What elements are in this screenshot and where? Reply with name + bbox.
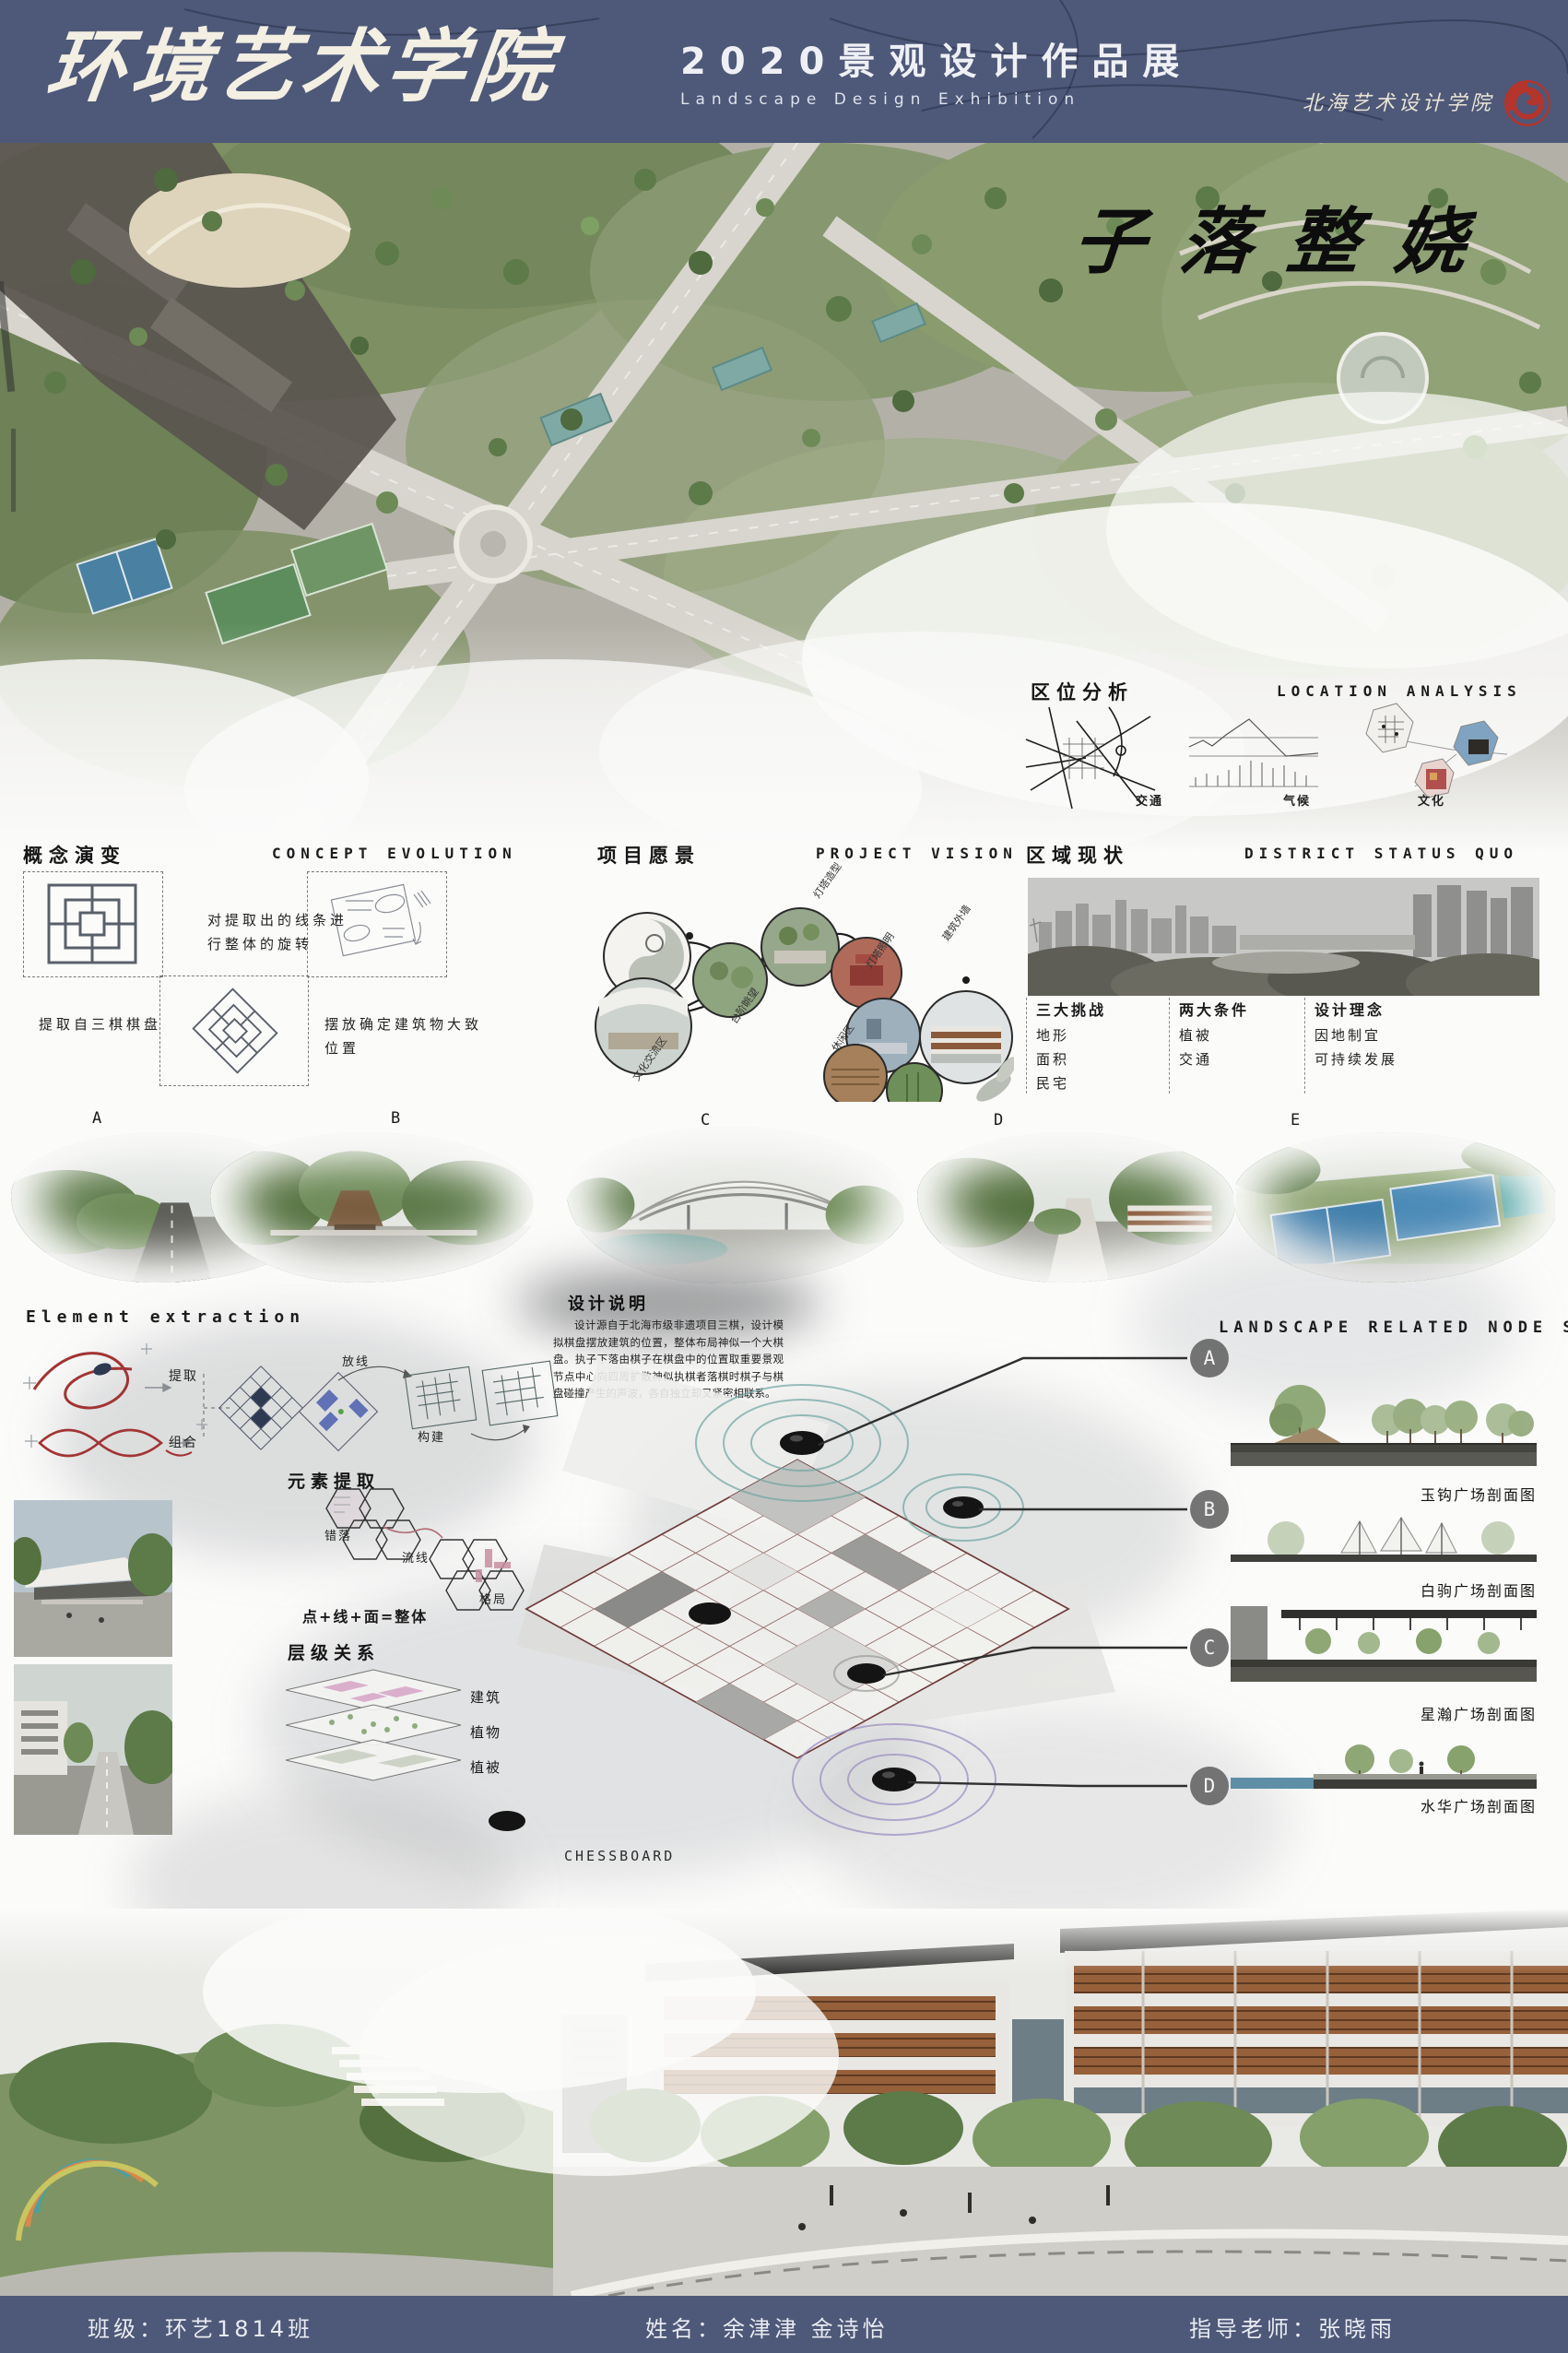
- institute-name: 北海艺术设计学院: [1303, 87, 1494, 116]
- section-marker-d: D: [1190, 1767, 1229, 1805]
- status-title-en: DISTRICT STATUS QUO: [1244, 845, 1518, 862]
- section-drawing-yugou: [1231, 1372, 1537, 1477]
- perspective-label-d: D: [994, 1111, 1003, 1129]
- section-marker-b: B: [1190, 1490, 1229, 1529]
- element-extract-label: 提取: [169, 1369, 198, 1384]
- location-analysis-title-zh: 区位分析: [1031, 678, 1134, 705]
- status-item: 面积: [1036, 1047, 1165, 1071]
- status-column-title: 设计理念: [1315, 998, 1499, 1020]
- chessboard-axon-plan: [433, 1305, 1244, 1904]
- campus-perspective-render: [0, 1909, 1568, 2296]
- perspective-label-b: B: [391, 1109, 400, 1128]
- render-photo-plaza: [14, 1500, 172, 1657]
- section-label-yugou: 玉钩广场剖面图: [1231, 1483, 1537, 1505]
- climate-chart-diagram: [1185, 715, 1323, 793]
- artwork-title: 子落整娆: [1069, 184, 1558, 288]
- section-drawing-shuihua: [1231, 1739, 1537, 1792]
- section-drawing-baiju: [1231, 1512, 1537, 1573]
- exhibition-subtitle: Landscape Design Exhibition: [680, 90, 1193, 109]
- status-column-conditions: 两大条件 植被 交通: [1169, 998, 1299, 1094]
- concept-title-zh: 概念演变: [23, 841, 126, 869]
- concept-caption-place: 摆放确定建筑物大致位置: [324, 1012, 486, 1060]
- status-item: 可持续发展: [1315, 1047, 1499, 1071]
- vision-journey-diagram: 灯塔造型 灯塔照明 建筑外墙 台阶眺望 休闲区 文化交流区: [590, 862, 1014, 1102]
- school-title: 环境艺术学院: [41, 2, 563, 117]
- section-label-shuihua: 水华广场剖面图: [1231, 1794, 1537, 1816]
- rotated-board-diagram: [180, 979, 290, 1082]
- concept-caption-source: 提取自三棋棋盘: [39, 1012, 161, 1036]
- section-drawing-xinghan: [1231, 1606, 1537, 1695]
- node-section-title: LANDSCAPE RELATED NODE SECTION: [1219, 1318, 1568, 1337]
- hierarchy-title: 层级关系: [288, 1639, 380, 1664]
- footer-banner: 班级：环艺1814班 姓名：余津津 金诗怡 指导老师：张晓雨: [0, 2296, 1568, 2353]
- element-formula: 点+线+面=整体: [302, 1604, 428, 1626]
- section-label-xinghan: 星瀚广场剖面图: [1231, 1702, 1537, 1724]
- location-item-traffic: 交通: [1136, 791, 1163, 809]
- status-column-challenges: 三大挑战 地形 面积 民宅: [1026, 998, 1165, 1094]
- exhibition-title-block: 2020景观设计作品展 Landscape Design Exhibition: [680, 31, 1193, 109]
- element-setout-label: 放线: [342, 1355, 370, 1369]
- concept-caption-rotate: 对提取出的线条进行整体的旋转: [207, 908, 355, 956]
- perspective-render-c: [567, 1127, 908, 1283]
- perspective-label-a: A: [92, 1109, 101, 1128]
- status-column-title: 三大挑战: [1036, 998, 1165, 1020]
- location-item-climate: 气候: [1283, 791, 1311, 809]
- poster-root: 子落整娆 环境艺术学院 2020景观设计作品展 Landscape Design…: [0, 0, 1568, 2353]
- status-item: 交通: [1179, 1047, 1299, 1071]
- vision-title-en: PROJECT VISION: [816, 845, 1018, 862]
- hex-label-liuxian: 流线: [402, 1552, 430, 1566]
- section-marker-c: C: [1190, 1628, 1229, 1667]
- perspective-render-b: [210, 1132, 537, 1283]
- status-item: 因地制宜: [1315, 1023, 1499, 1047]
- status-item: 民宅: [1036, 1071, 1165, 1095]
- footer-advisor: 指导老师：张晓雨: [1189, 2311, 1396, 2343]
- footer-students: 姓名：余津津 金诗怡: [645, 2311, 889, 2343]
- exhibition-title: 2020景观设计作品展: [680, 31, 1193, 85]
- perspective-label-e: E: [1291, 1111, 1300, 1129]
- institute-logo-icon: [1502, 77, 1553, 129]
- section-marker-a: A: [1190, 1339, 1229, 1378]
- element-combine-label: 组合: [169, 1436, 198, 1450]
- element-extraction-title: Element extraction: [26, 1307, 305, 1327]
- status-column-title: 两大条件: [1179, 998, 1299, 1020]
- chessboard-motif-diagram: [41, 881, 143, 968]
- status-item: 植被: [1179, 1023, 1299, 1047]
- vision-label: 灯塔造型: [810, 862, 844, 901]
- hex-label-cuoluo: 错落: [324, 1530, 352, 1543]
- status-column-concept: 设计理念 因地制宜 可持续发展: [1304, 998, 1499, 1094]
- site-panorama-photo: [1028, 878, 1539, 996]
- status-item: 地形: [1036, 1023, 1165, 1047]
- perspective-render-d: [917, 1132, 1235, 1283]
- status-title-zh: 区域现状: [1026, 841, 1129, 869]
- header-banner: 环境艺术学院 2020景观设计作品展 Landscape Design Exhi…: [0, 0, 1568, 143]
- section-label-baiju: 白驹广场剖面图: [1231, 1579, 1537, 1601]
- location-item-culture: 文化: [1418, 791, 1445, 809]
- concept-title-en: CONCEPT EVOLUTION: [272, 845, 517, 862]
- chessboard-caption: CHESSBOARD: [564, 1848, 675, 1864]
- perspective-render-e: [1233, 1132, 1558, 1283]
- location-analysis-title-en: LOCATION ANALYSIS: [1277, 682, 1522, 700]
- render-photo-street: [14, 1664, 172, 1835]
- footer-class: 班级：环艺1814班: [88, 2311, 313, 2343]
- vision-label: 建筑外墙: [939, 903, 973, 943]
